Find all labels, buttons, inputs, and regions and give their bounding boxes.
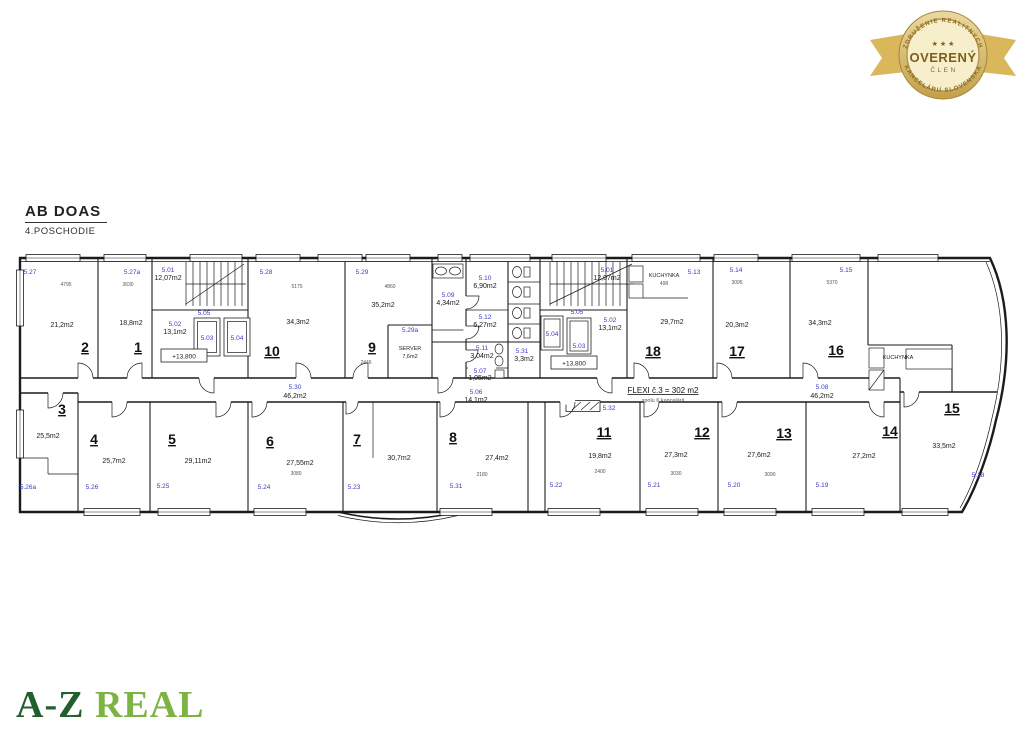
- walls: [20, 258, 997, 512]
- dim-office-6: 3080: [290, 471, 301, 477]
- office-11-area: 19,8m2: [588, 453, 611, 460]
- corridor-right-code: 5.08: [816, 384, 829, 391]
- kuchynka-18-label: KUCHYNKA: [649, 273, 680, 279]
- lobby-left-code: 5.02: [169, 321, 182, 328]
- office-8-area: 27,4m2: [485, 455, 508, 462]
- lift-left-b-code: 5.04: [231, 335, 244, 342]
- hall-right-code: 5.05: [571, 309, 584, 316]
- office-1-area: 18,8m2: [119, 320, 142, 327]
- office-4-code: 5.26: [86, 484, 99, 491]
- lift-right-a-code: 5.04: [546, 331, 559, 338]
- office-7-number: 7: [353, 431, 361, 447]
- corridor-mid-code: 5.06: [470, 389, 483, 396]
- stair-left-code: 5.01: [162, 267, 175, 274]
- office-6-number: 6: [266, 433, 274, 449]
- office-10-number: 10: [264, 343, 280, 359]
- dim-kuchynka-18: 498: [660, 281, 669, 287]
- dim-office-11: 2400: [594, 469, 605, 475]
- office-13-number: 13: [776, 425, 792, 441]
- logo-part-2: REAL: [95, 684, 205, 726]
- office-12-code: 5.21: [648, 482, 661, 489]
- office-9-number: 9: [368, 339, 376, 355]
- office-17-area: 20,3m2: [725, 322, 748, 329]
- office-7-area: 30,7m2: [387, 455, 410, 462]
- stairs-right: [550, 262, 634, 306]
- dim-office-8: 2180: [476, 472, 487, 478]
- office-7-code: 5.23: [348, 484, 361, 491]
- company-logo: A-Z REAL: [16, 686, 205, 724]
- office-8-number: 8: [449, 429, 457, 445]
- lobby-right-area: 13,1m2: [598, 325, 621, 332]
- office-12-number: 12: [694, 424, 710, 440]
- office-18-area: 29,7m2: [660, 319, 683, 326]
- office-2-number: 2: [81, 339, 89, 355]
- office-5-area: 29,11m2: [185, 458, 212, 465]
- office-18-code: 5.13: [688, 269, 701, 276]
- flexi-title: FLEXI č.3 = 302 m2: [628, 386, 699, 395]
- stair-left-area: 12,07m2: [154, 275, 181, 282]
- office-2-area: 21,2m2: [50, 322, 73, 329]
- office-8-code: 5.31: [450, 483, 463, 490]
- stair-right-code: 5.01: [601, 267, 614, 274]
- office-3-number: 3: [58, 401, 66, 417]
- dim-office-1: 3630: [122, 282, 133, 288]
- office-3-area: 25,5m2: [36, 433, 59, 440]
- logo-part-1: A-Z: [16, 684, 84, 726]
- niche-code: 5.32: [603, 405, 616, 412]
- dim-office-9: 4860: [384, 284, 395, 290]
- stairs-left: [186, 262, 246, 306]
- office-13-area: 27,6m2: [747, 452, 770, 459]
- store-code: 5.07: [474, 368, 487, 375]
- dim-office-9b: 2446: [360, 360, 371, 366]
- lift-right-b-code: 5.03: [573, 343, 586, 350]
- office-15-area: 33,5m2: [932, 443, 955, 450]
- wc-lobby-area: 4,34m2: [436, 300, 459, 307]
- office-5-code: 5.25: [157, 483, 170, 490]
- stair-right-area: 12,07m2: [593, 275, 620, 282]
- kuchynka-right-label: KUCHYNKA: [883, 355, 914, 361]
- lobby-right-code: 5.02: [604, 317, 617, 324]
- dim-office-16: 5370: [826, 280, 837, 286]
- office-3-code: 5.26a: [20, 484, 37, 491]
- store-area: 1,05m2: [468, 375, 491, 382]
- server-label: SERVER: [399, 346, 422, 352]
- office-16-code: 5.15: [840, 267, 853, 274]
- office-13-code: 5.20: [728, 482, 741, 489]
- corridor-mid-area: 14,1m2: [464, 397, 487, 404]
- wc4-code: 5.31: [516, 348, 529, 355]
- level-mark-left: +13,800: [172, 354, 196, 361]
- office-6-area: 27,55m2: [286, 460, 313, 467]
- elevators: [194, 316, 591, 356]
- office-4-number: 4: [90, 431, 98, 447]
- office-5-number: 5: [168, 431, 176, 447]
- wc3-area: 3,04m2: [470, 353, 493, 360]
- office-15-number: 15: [944, 400, 960, 416]
- dim-office-13: 3090: [764, 472, 775, 478]
- dim-office-17: 3095: [731, 280, 742, 286]
- office-16-number: 16: [828, 342, 844, 358]
- office-11-number: 11: [597, 424, 612, 440]
- lobby-left-area: 13,1m2: [163, 329, 186, 336]
- office-15-code: 5.18: [972, 472, 985, 479]
- office-17-number: 17: [729, 343, 745, 359]
- office-17-code: 5.14: [730, 267, 743, 274]
- office-9-area: 35,2m2: [371, 302, 394, 309]
- wc3-code: 5.11: [476, 345, 489, 352]
- wc4-area: 3,3m2: [514, 356, 534, 363]
- office-1-number: 1: [134, 339, 142, 355]
- server-code: 5.29a: [402, 327, 419, 334]
- office-2-code: 5.27: [24, 269, 37, 276]
- wc1-area: 6,90m2: [473, 283, 496, 290]
- office-14-area: 27,2m2: [852, 453, 875, 460]
- office-11-code: 5.22: [550, 482, 563, 489]
- wc-lobby-code: 5.09: [442, 292, 455, 299]
- wc1-code: 5.10: [479, 275, 492, 282]
- dim-office-2: 4795: [60, 282, 71, 288]
- office-16-area: 34,3m2: [808, 320, 831, 327]
- corridor-left-code: 5.30: [289, 384, 302, 391]
- corridor-right-area: 46,2m2: [810, 393, 833, 400]
- hall-left-code: 5.05: [198, 310, 211, 317]
- level-mark-right: +13,800: [562, 361, 586, 368]
- labels: 5.27 4795 21,2m2 2 5.27a 3630 18,8m2 1 5…: [20, 267, 985, 491]
- floorplan-drawing: 5.27 4795 21,2m2 2 5.27a 3630 18,8m2 1 5…: [0, 0, 1024, 731]
- dim-office-12: 3030: [670, 471, 681, 477]
- office-14-code: 5.19: [816, 482, 829, 489]
- lift-left-a-code: 5.03: [201, 335, 214, 342]
- dim-office-10: 5175: [291, 284, 302, 290]
- office-10-area: 34,3m2: [286, 319, 309, 326]
- office-6-code: 5.24: [258, 484, 271, 491]
- wc2-area: 6,27m2: [473, 322, 496, 329]
- floorplan-page: AB DOAS 4.POSCHODIE ZDRUŽENIE REALITNÝCH…: [0, 0, 1024, 731]
- office-12-area: 27,3m2: [664, 452, 687, 459]
- office-18-number: 18: [645, 343, 661, 359]
- office-10-code: 5.28: [260, 269, 273, 276]
- office-9-code: 5.29: [356, 269, 369, 276]
- office-4-area: 25,7m2: [102, 458, 125, 465]
- wc2-code: 5.12: [479, 314, 492, 321]
- office-1-code: 5.27a: [124, 269, 141, 276]
- corridor-left-area: 46,2m2: [283, 393, 306, 400]
- server-area: 7,6m2: [402, 354, 417, 360]
- flexi-subtitle: spolu 6 kancelárií: [642, 398, 685, 404]
- office-14-number: 14: [882, 423, 898, 439]
